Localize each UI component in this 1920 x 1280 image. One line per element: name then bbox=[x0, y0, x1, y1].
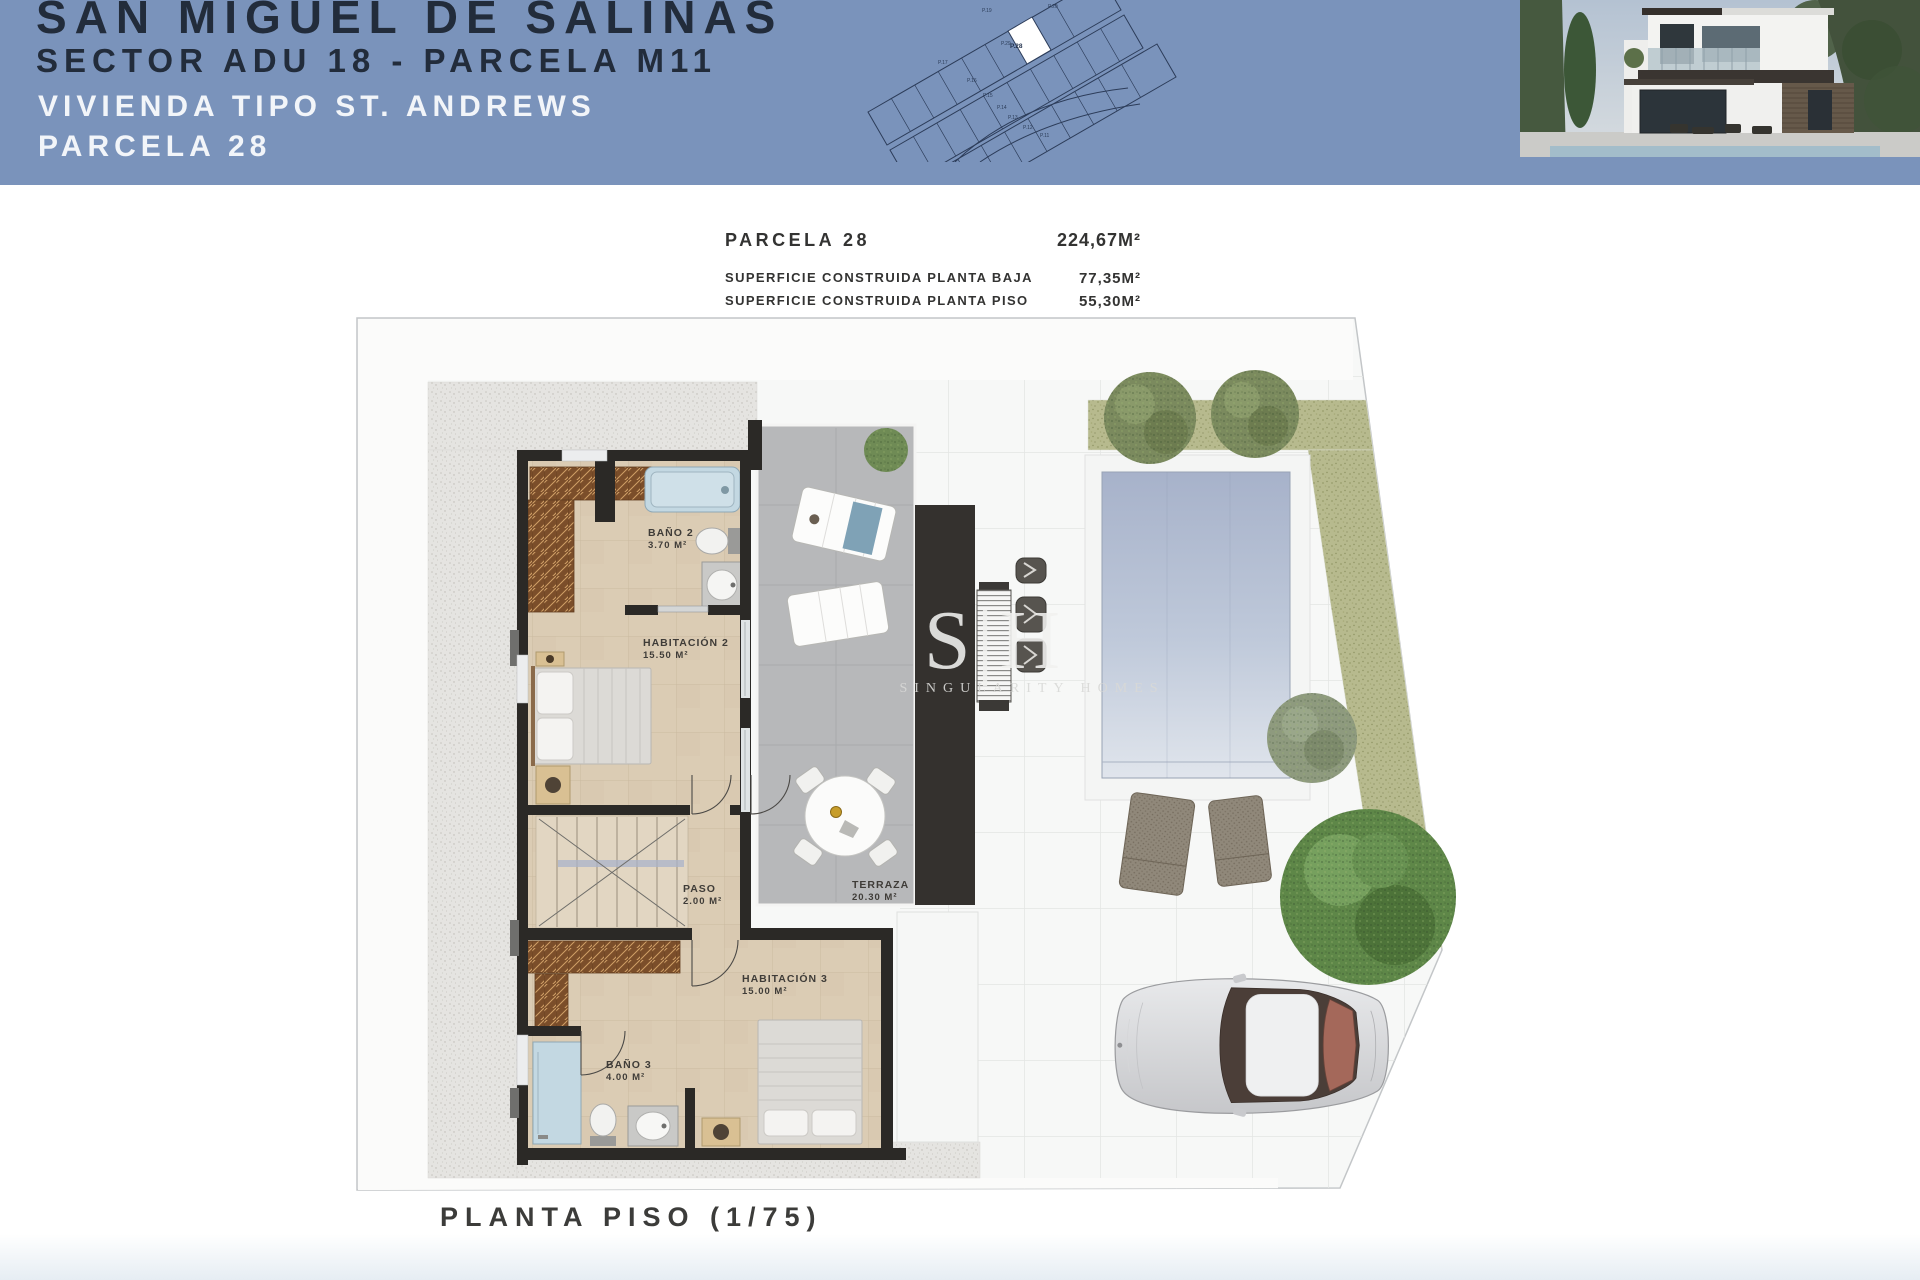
svg-text:15.00 M²: 15.00 M² bbox=[742, 986, 788, 997]
page-title: SAN MIGUEL DE SALINAS bbox=[36, 0, 783, 44]
summary-value: 224,67M² bbox=[1057, 230, 1141, 251]
svg-text:P.14: P.14 bbox=[997, 105, 1007, 111]
tree-icon bbox=[1104, 372, 1196, 464]
large-tree-icon bbox=[1280, 809, 1456, 985]
plan-caption: PLANTA PISO (1/75) bbox=[440, 1202, 823, 1233]
staircase bbox=[536, 816, 688, 928]
svg-text:P.20: P.20 bbox=[1048, 4, 1058, 10]
parcel-labels: P.19 P.20 P.29 P.17 P.16 P.15 P.14 P.13 … bbox=[938, 4, 1058, 139]
porch bbox=[897, 912, 978, 1142]
bush-icon bbox=[864, 428, 908, 472]
svg-text:P.15: P.15 bbox=[983, 93, 993, 99]
page-bottom-edge bbox=[0, 1234, 1920, 1280]
room-label-paso: PASO bbox=[683, 883, 716, 895]
summary-value: 77,35M² bbox=[1079, 270, 1141, 287]
feature-wall bbox=[915, 505, 975, 905]
cypress-tree bbox=[1564, 12, 1596, 128]
summary-row: PARCELA 28 224,67M² bbox=[725, 230, 1141, 251]
header-band: SAN MIGUEL DE SALINAS SECTOR ADU 18 - PA… bbox=[0, 0, 1920, 185]
villa-render-photo bbox=[1520, 0, 1920, 157]
svg-text:4.00 M²: 4.00 M² bbox=[606, 1072, 645, 1083]
room-label-bano2: BAÑO 2 bbox=[648, 526, 694, 539]
svg-text:P.16: P.16 bbox=[967, 78, 977, 84]
room-label-habitacion2: HABITACIÓN 2 bbox=[643, 636, 729, 649]
svg-text:P.12: P.12 bbox=[1023, 125, 1033, 131]
page-subtitle-vivienda: VIVIENDA TIPO ST. ANDREWS bbox=[38, 90, 596, 124]
car-top-view bbox=[1115, 973, 1388, 1117]
summary-label: SUPERFICIE CONSTRUIDA PLANTA BAJA bbox=[725, 270, 1033, 287]
svg-text:P.29: P.29 bbox=[1001, 41, 1011, 47]
room-label-terraza: TERRAZA bbox=[852, 879, 909, 891]
svg-text:3.70 M²: 3.70 M² bbox=[648, 540, 687, 551]
toilet bbox=[590, 1104, 616, 1136]
watermark-brand: SINGULARITY HOMES bbox=[899, 681, 1164, 696]
tree-icon bbox=[1267, 693, 1357, 783]
shower bbox=[533, 1042, 581, 1144]
room-label-habitacion3: HABITACIÓN 3 bbox=[742, 972, 828, 985]
svg-text:15.50 M²: 15.50 M² bbox=[643, 650, 689, 661]
svg-text:20.30 M²: 20.30 M² bbox=[852, 892, 898, 903]
page-subtitle-sector: SECTOR ADU 18 - PARCELA M11 bbox=[36, 42, 717, 80]
floor-plan: S|H SINGULARITY HOMES BAÑO 2 3.70 M² HAB… bbox=[340, 300, 1500, 1210]
site-plan-map: P.28 P.19 P.20 P.29 P.17 P.16 P.15 P.14 … bbox=[860, 0, 1260, 162]
swimming-pool bbox=[1102, 472, 1290, 778]
svg-text:P.11: P.11 bbox=[1040, 133, 1049, 139]
pool-edge bbox=[1550, 146, 1880, 157]
page-subtitle-parcela: PARCELA 28 bbox=[38, 130, 271, 164]
summary-label: PARCELA 28 bbox=[725, 230, 870, 251]
svg-text:P.13: P.13 bbox=[1008, 115, 1018, 121]
brochure-page: SAN MIGUEL DE SALINAS SECTOR ADU 18 - PA… bbox=[0, 0, 1920, 1280]
outdoor-dining-table bbox=[792, 765, 899, 868]
parcel-label-highlight: P.28 bbox=[1010, 43, 1023, 50]
toilet-tank bbox=[728, 528, 740, 554]
svg-text:2.00 M²: 2.00 M² bbox=[683, 896, 722, 907]
room-label-bano3: BAÑO 3 bbox=[606, 1058, 652, 1071]
svg-text:P.17: P.17 bbox=[938, 60, 948, 66]
svg-text:P.19: P.19 bbox=[982, 8, 992, 14]
highlighted-parcel-28 bbox=[1008, 17, 1051, 64]
watermark-monogram: S|H bbox=[924, 594, 1066, 687]
summary-row: SUPERFICIE CONSTRUIDA PLANTA BAJA 77,35M… bbox=[725, 270, 1141, 287]
tree-icon bbox=[1211, 370, 1299, 458]
toilet bbox=[696, 528, 728, 554]
